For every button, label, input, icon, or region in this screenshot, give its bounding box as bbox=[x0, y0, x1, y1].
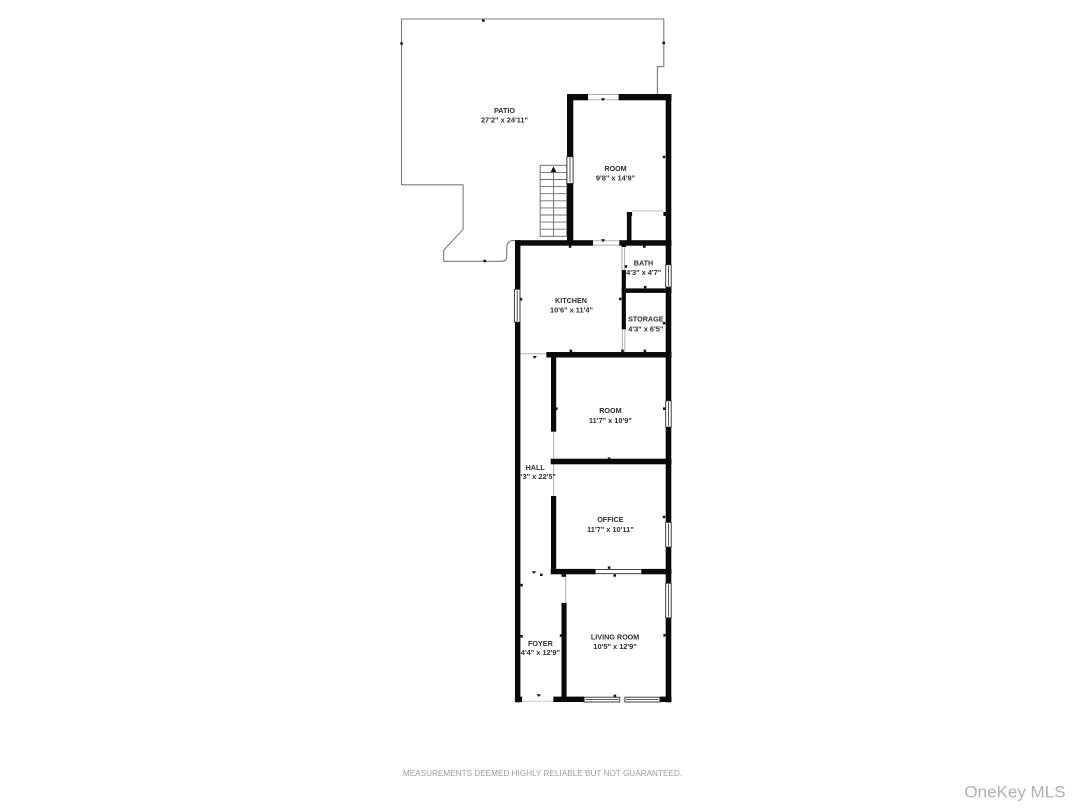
svg-text:ROOM: ROOM bbox=[599, 406, 621, 415]
svg-text:OFFICE: OFFICE bbox=[597, 515, 624, 524]
svg-text:9'8" x 14'9": 9'8" x 14'9" bbox=[596, 173, 636, 182]
svg-text:PATIO: PATIO bbox=[494, 106, 515, 115]
svg-text:27'2" x 24'11": 27'2" x 24'11" bbox=[481, 116, 529, 125]
svg-text:10'5" x 12'9": 10'5" x 12'9" bbox=[593, 642, 637, 651]
svg-text:7'3" x 22'5": 7'3" x 22'5" bbox=[517, 472, 557, 481]
svg-text:ROOM: ROOM bbox=[604, 164, 626, 173]
svg-text:BATH: BATH bbox=[634, 258, 653, 267]
svg-text:11'7" x 10'9": 11'7" x 10'9" bbox=[589, 416, 632, 425]
svg-text:HALL: HALL bbox=[526, 463, 546, 472]
svg-text:OneKey MLS: OneKey MLS bbox=[964, 783, 1065, 802]
svg-text:4'3" x 4'7": 4'3" x 4'7" bbox=[626, 268, 662, 277]
svg-text:FOYER: FOYER bbox=[528, 639, 554, 648]
svg-text:11'7" x 10'11": 11'7" x 10'11" bbox=[587, 525, 634, 534]
svg-text:10'6" x 11'4": 10'6" x 11'4" bbox=[550, 306, 593, 315]
svg-text:KITCHEN: KITCHEN bbox=[555, 296, 587, 305]
svg-text:4'4" x 12'9": 4'4" x 12'9" bbox=[521, 648, 561, 657]
svg-text:4'3" x 6'5": 4'3" x 6'5" bbox=[628, 324, 664, 333]
svg-text:MEASUREMENTS DEEMED HIGHLY REL: MEASUREMENTS DEEMED HIGHLY RELIABLE BUT … bbox=[403, 769, 682, 778]
svg-text:STORAGE: STORAGE bbox=[628, 314, 664, 323]
svg-text:LIVING ROOM: LIVING ROOM bbox=[591, 632, 639, 641]
